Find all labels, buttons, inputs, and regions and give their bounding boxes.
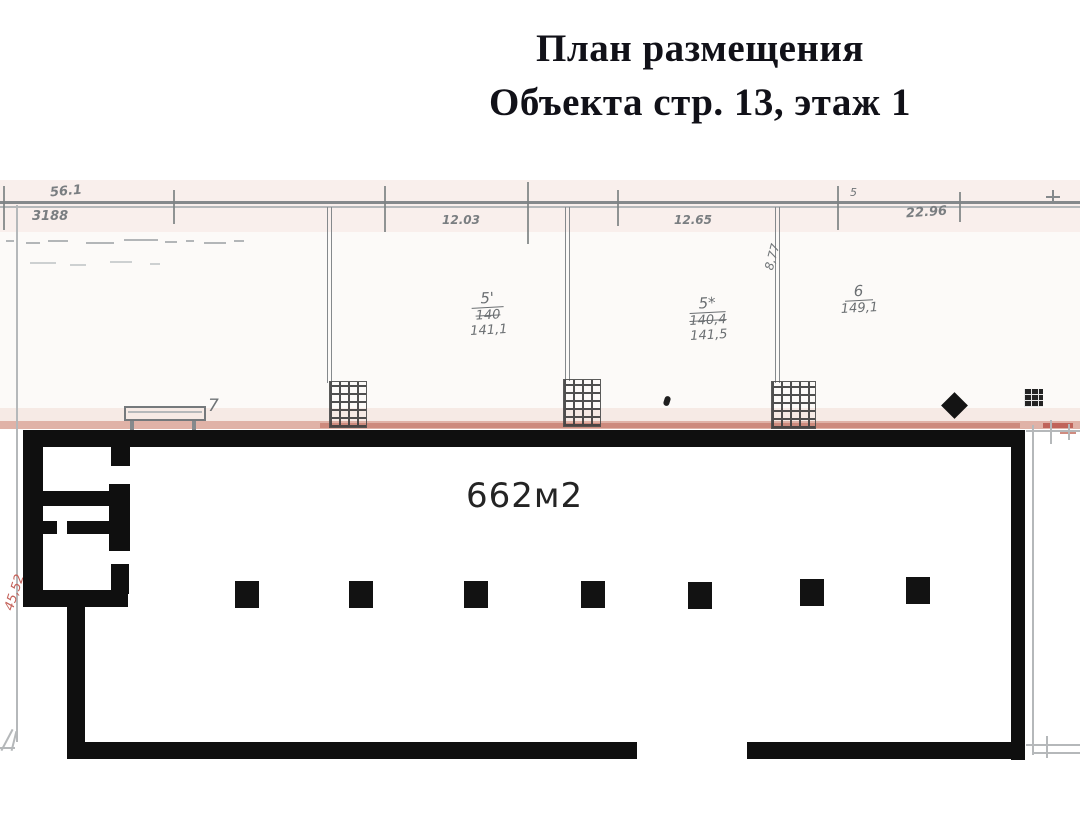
hall-left-wall-lower bbox=[67, 590, 85, 755]
bench-inner-line bbox=[128, 411, 202, 413]
partition-wall bbox=[775, 207, 780, 383]
vestibule-door-stub-left bbox=[43, 521, 57, 534]
tick-mark bbox=[527, 182, 529, 244]
faint-scribble bbox=[150, 263, 160, 265]
dim-right-width: 22.96 bbox=[906, 204, 948, 222]
tick-mark bbox=[959, 192, 961, 222]
column-square bbox=[235, 581, 259, 608]
survey-tick-right-top bbox=[1050, 420, 1052, 444]
vestibule-door-stub-mid bbox=[67, 521, 111, 534]
room-number: 5' bbox=[471, 290, 504, 309]
page-title-line-1: План размещения bbox=[360, 26, 1040, 71]
faint-scribble bbox=[6, 240, 14, 242]
faint-scribble bbox=[30, 262, 56, 264]
dim-top-left-small: 56.1 bbox=[49, 183, 82, 201]
faint-scribble bbox=[26, 242, 40, 244]
column-square bbox=[800, 579, 824, 606]
tick-mark bbox=[173, 190, 175, 224]
bench-leg bbox=[130, 421, 134, 430]
bench-leg bbox=[192, 421, 196, 430]
hall-area-label: 662м2 bbox=[466, 476, 583, 516]
column-square bbox=[688, 582, 712, 609]
room-area-new: 149,1 bbox=[824, 299, 895, 318]
column-square bbox=[906, 577, 930, 604]
speck-mark bbox=[663, 395, 672, 406]
bench-mark: 7 bbox=[208, 396, 219, 416]
column-square bbox=[464, 581, 488, 608]
hall-top-wall bbox=[23, 430, 1025, 447]
hall-bottom-wall-right bbox=[747, 742, 1025, 759]
faint-scribble bbox=[86, 242, 114, 244]
faint-scribble bbox=[234, 240, 244, 242]
faint-scribble bbox=[165, 241, 177, 243]
room-label-6: 6 149,1 bbox=[823, 282, 895, 318]
door-hatch-symbol bbox=[771, 381, 816, 429]
tick-mark bbox=[384, 186, 386, 232]
faint-scribble bbox=[48, 240, 68, 242]
grid-square-symbol bbox=[1024, 389, 1043, 407]
column-square bbox=[581, 581, 605, 608]
line-foot bbox=[0, 747, 15, 749]
room-area-new: 141,5 bbox=[668, 326, 749, 345]
survey-tick-right-bottom bbox=[1046, 736, 1048, 758]
faint-scribble bbox=[110, 261, 132, 263]
room-label-5a: 5' 140 141,1 bbox=[447, 289, 529, 340]
vestibule-stub-bottom bbox=[111, 564, 129, 594]
door-hatch-symbol bbox=[329, 381, 367, 428]
survey-line-right bbox=[1032, 425, 1034, 755]
vestibule-stub-top bbox=[111, 447, 130, 466]
plus-mark bbox=[1052, 190, 1054, 204]
survey-line-right-h3 bbox=[1032, 752, 1080, 754]
chain-line-top bbox=[0, 201, 1080, 204]
hall-right-wall bbox=[1011, 430, 1025, 760]
floor-plan-page: План размещения Объекта стр. 13, этаж 1 … bbox=[0, 0, 1080, 832]
tick-mark bbox=[837, 186, 839, 230]
faint-scribble bbox=[124, 239, 158, 241]
page-title-line-2: Объекта стр. 13, этаж 1 bbox=[360, 80, 1040, 125]
faint-scribble bbox=[186, 240, 194, 242]
red-pencil-line bbox=[0, 421, 1080, 429]
tick-mark bbox=[617, 190, 619, 226]
column-square bbox=[349, 581, 373, 608]
door-hatch-symbol bbox=[563, 379, 601, 427]
survey-line-left bbox=[16, 205, 18, 742]
room-area-new: 141,1 bbox=[448, 321, 529, 340]
dim-room2-width: 12.65 bbox=[674, 213, 712, 227]
faint-scribble bbox=[204, 242, 226, 244]
survey-line-right-h1 bbox=[1026, 430, 1080, 432]
vestibule-right-wall bbox=[109, 484, 130, 551]
tick-mark bbox=[3, 186, 5, 230]
bench-symbol bbox=[124, 406, 206, 421]
dim-room1-width: 12.03 bbox=[442, 213, 480, 227]
survey-tick-right-top-2 bbox=[1068, 424, 1070, 440]
vestibule-inner-wall bbox=[43, 491, 113, 506]
room-label-5b: 5* 140,4 141,5 bbox=[667, 294, 749, 345]
diamond-symbol bbox=[941, 392, 968, 419]
vestibule-left-wall bbox=[23, 430, 43, 607]
room-number: 5* bbox=[689, 295, 725, 314]
partition-wall bbox=[327, 207, 332, 383]
dim-top-left-bold: 3188 bbox=[32, 209, 68, 224]
hall-bottom-wall-left bbox=[67, 742, 637, 759]
red-pencil-line-strong bbox=[320, 423, 1020, 428]
survey-line-right-h2 bbox=[1026, 744, 1080, 746]
room-number: 6 bbox=[844, 283, 872, 301]
faint-scribble bbox=[70, 264, 86, 266]
scan-tint-mid bbox=[0, 232, 1080, 422]
dim-small-mark: 5 bbox=[850, 186, 857, 199]
partition-wall bbox=[565, 207, 570, 381]
